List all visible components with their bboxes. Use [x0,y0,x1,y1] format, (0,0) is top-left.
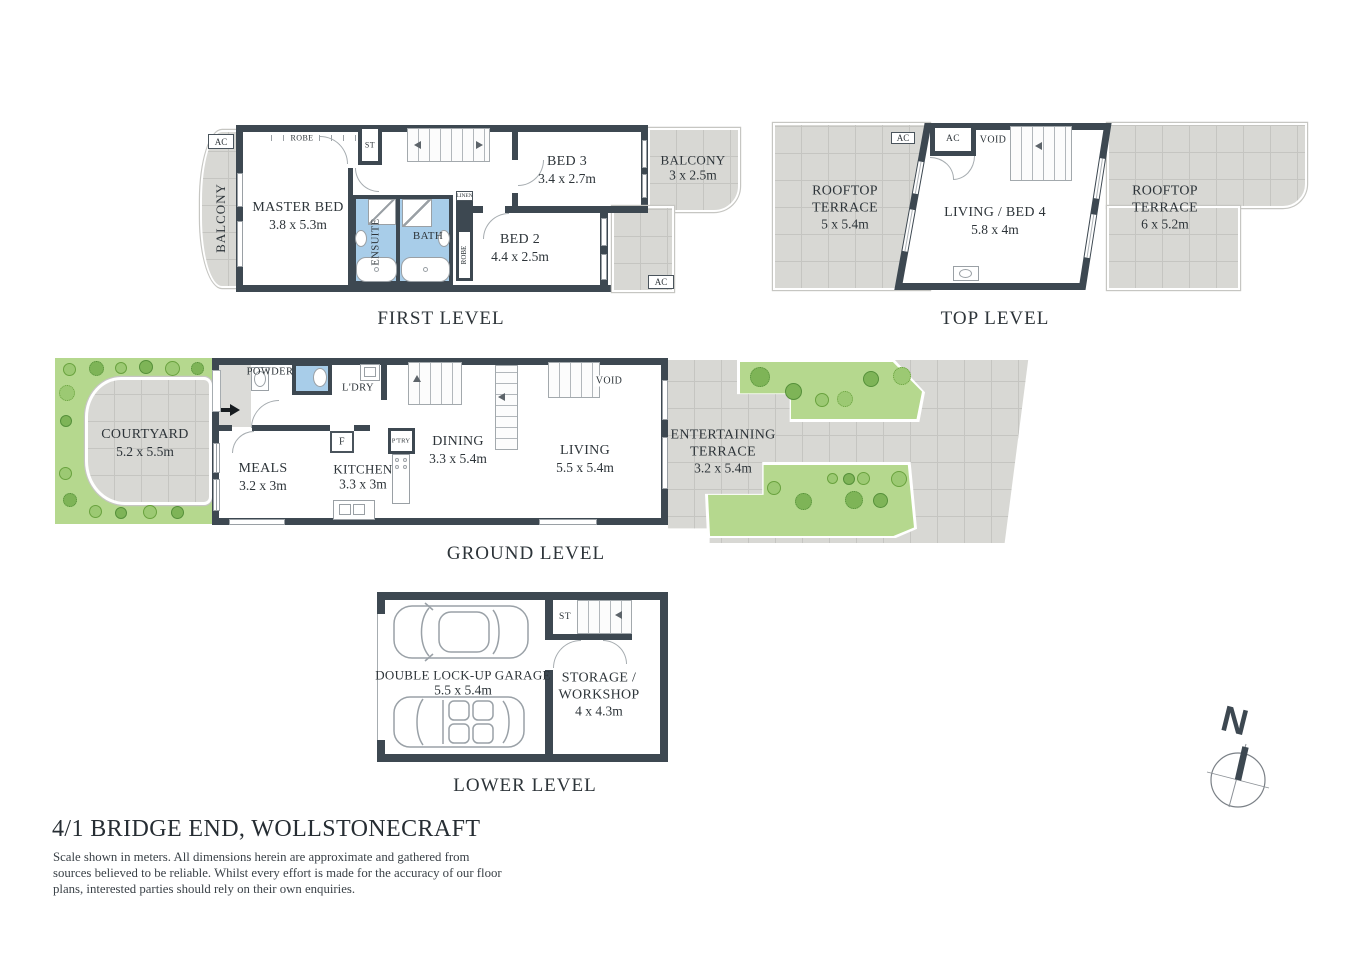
plant-icon [857,472,870,485]
lower-garage-label: DOUBLE LOCK-UP GARAGE 5.5 x 5.4m [375,667,551,698]
entry-arrow-icon [230,404,240,416]
car-top-view [391,693,527,751]
ground-terrace-label: ENTERTAINING TERRACE 3.2 x 5.4m [661,428,786,477]
compass: N [1192,696,1288,808]
window [229,519,285,525]
room-name: DOUBLE LOCK-UP GARAGE [375,667,551,682]
stove-burner [395,458,399,462]
ground-powder-label: POWDER [247,367,294,378]
stove-burner [395,465,399,469]
stair-arrow-icon [476,141,483,149]
top-level-plan: AC AC VOID ROOFTOP TERRACE 5 x 5.4m LIVI… [773,118,1318,333]
ac-label: AC [897,133,910,143]
room-name: BED 3 [538,154,596,171]
first-master-label: MASTER BED 3.8 x 5.3m [252,200,343,232]
lower-storage-label: STORAGE / WORKSHOP 4 x 4.3m [549,671,649,720]
plant-icon [115,362,127,374]
wall [354,425,370,431]
wall [252,425,330,431]
plant-icon [63,493,77,507]
toilet-seat [959,269,972,278]
lower-store-label: ST [559,612,571,622]
first-bed2-label: BED 2 4.4 x 2.5m [491,232,549,264]
first-balcony-right-label: BALCONY 3 x 2.5m [661,152,726,183]
room-dims: 5.8 x 4m [944,221,1046,237]
first-bed3-label: BED 3 3.4 x 2.7m [538,154,596,186]
top-living-label: LIVING / BED 4 5.8 x 4m [944,205,1046,237]
room-name: MEALS [239,461,288,478]
top-ac-unit-label: AC [946,134,960,144]
disclaimer-line: sources believed to be reliable. Whilst … [53,865,553,881]
ground-stairs-down [495,365,518,450]
plant-icon [115,507,127,519]
closet [456,201,473,229]
stair-arrow-icon [413,375,421,382]
ground-fridge-label: F [339,437,345,448]
plant-icon [89,361,104,376]
plant-icon [60,415,72,427]
wall [381,358,387,400]
plant-icon [171,506,184,519]
top-ac-wall-tag: AC [891,132,915,144]
laundry-sink-bowl [364,367,376,377]
room-name: BED 2 [491,232,549,249]
entry-arrow-icon [221,408,230,412]
ground-meals-label: MEALS 3.2 x 3m [239,461,288,493]
room-dims: 6 x 5.2m [1119,217,1211,233]
plant-icon [59,467,72,480]
room-dims: 4 x 4.3m [549,704,649,720]
first-bath-label: BATH [413,230,443,242]
ac-label: AC [215,137,228,147]
floor-plan-page: AC BALCONY AC ST ROBE ENS [0,0,1358,960]
shower [402,199,432,227]
entry-door-gap [212,370,221,412]
plant-icon [785,383,802,400]
first-robe-top-label: ROBE [289,134,316,143]
stair-arrow-icon [615,611,622,619]
room-dims: 5 x 5.4m [799,217,891,233]
plant-icon [873,493,888,508]
room-name: ROOFTOP TERRACE [1119,184,1211,217]
ground-dining-label: DINING 3.3 x 5.4m [429,434,487,466]
first-ac-top-tag: AC [208,134,234,149]
plant-icon [59,385,75,401]
plant-icon [165,361,180,376]
room-dims: 5.2 x 5.5m [101,443,188,459]
stair-arrow-icon [414,141,421,149]
top-level-caption: TOP LEVEL [941,308,1050,330]
disclaimer-line: plans, interested parties should rely on… [53,881,553,897]
room-dims: 3.2 x 3m [239,477,288,493]
room-name: STORAGE / WORKSHOP [549,671,649,704]
window [237,173,243,207]
wall [553,634,632,640]
window [213,479,220,511]
wall [512,193,518,206]
window [539,519,597,525]
wall [473,206,483,213]
toilet [313,368,327,387]
room-name: LIVING [556,443,614,460]
plant-icon [89,505,102,518]
ground-void-label: VOID [594,376,625,387]
wall [212,425,232,431]
toilet [355,230,367,247]
kitchen-sink [353,504,365,515]
plant-icon [843,473,855,485]
first-linen-tag: LINEN [456,191,473,201]
plant-icon [891,471,907,487]
top-terrace-right-label: ROOFTOP TERRACE 6 x 5.2m [1119,184,1211,233]
plant-icon [750,367,770,387]
compass-rose-icon: N [1192,696,1288,808]
wall [545,592,553,640]
ground-laundry-label: L'DRY [342,383,374,394]
room-name: BALCONY [661,152,726,167]
basin [374,267,379,272]
room-dims: 4.4 x 2.5m [491,248,549,264]
ground-level-caption: GROUND LEVEL [447,543,605,565]
room-name: COURTYARD [101,427,188,444]
stair-arrow-icon [1035,142,1042,150]
plant-icon [139,360,153,374]
window [237,221,243,267]
ground-stairs-up [408,362,462,405]
plant-icon [815,393,829,407]
wall [512,125,518,160]
room-dims: 3 x 2.5m [661,168,726,184]
disclaimer-line: Scale shown in meters. All dimensions he… [53,849,553,865]
plant-icon [845,491,863,509]
page-title: 4/1 BRIDGE END, WOLLSTONECRAFT [52,816,480,843]
plant-icon [795,493,812,510]
room-name: DINING [429,434,487,451]
plant-icon [63,363,76,376]
ac-label: AC [655,277,668,287]
ground-level-plan: COURTYARD 5.2 x 5.5m POWDER L'DRY VOID F [55,355,1045,555]
wall [505,206,648,213]
top-terrace-left-label: ROOFTOP TERRACE 5 x 5.4m [799,184,891,233]
plant-icon [837,391,853,407]
first-robe-side-label: ROBE [460,246,468,265]
ground-stairs-upper-flight [548,362,600,398]
window [662,380,668,420]
lower-level-caption: LOWER LEVEL [453,775,596,797]
first-ensuite-label: ENSUITE [371,218,382,265]
disclaimer: Scale shown in meters. All dimensions he… [53,849,553,897]
room-dims: 3.8 x 5.3m [252,216,343,232]
plant-icon [893,367,911,385]
lower-level-plan: ST DO [377,592,672,802]
room-name: ENTERTAINING TERRACE [661,428,786,461]
plant-icon [767,481,781,495]
first-level-caption: FIRST LEVEL [377,308,504,330]
stair-arrow-icon [498,393,505,401]
room-dims: 5.5 x 5.4m [375,683,551,699]
first-store-label: ST [365,141,375,150]
plant-icon [863,371,879,387]
ground-courtyard-label: COURTYARD 5.2 x 5.5m [101,427,188,459]
ground-living-label: LIVING 5.5 x 5.4m [556,443,614,475]
room-name: LIVING / BED 4 [944,205,1046,222]
kitchen-sink [339,504,351,515]
ground-kitchen-label: KITCHEN 3.3 x 3m [333,461,392,492]
first-balcony-left-label: BALCONY [213,183,229,253]
basin [423,267,428,272]
window [213,443,220,473]
stove-burner [403,458,407,462]
top-void-label: VOID [978,135,1009,146]
car-top-view [391,601,531,663]
ground-pantry-label: P'TRY [392,438,410,445]
plant-icon [191,362,204,375]
room-dims: 3.3 x 3m [333,477,392,493]
plant-icon [143,505,157,519]
linen-label: LINEN [456,193,473,199]
room-name: KITCHEN [333,461,392,476]
top-stairs [1010,126,1072,181]
plant-icon [827,473,838,484]
room-dims: 3.2 x 5.4m [661,461,786,477]
stove-burner [403,465,407,469]
window [601,254,607,280]
room-dims: 3.3 x 5.4m [429,450,487,466]
room-name: ROOFTOP TERRACE [799,184,891,217]
window [601,218,607,246]
room-dims: 3.4 x 2.7m [538,170,596,186]
lower-stairs [577,600,632,634]
first-level-plan: AC BALCONY AC ST ROBE ENS [200,118,748,333]
window [642,174,647,198]
first-ac-bottom-tag: AC [648,275,674,289]
window [642,140,647,168]
north-label: N [1217,697,1252,743]
room-dims: 5.5 x 5.4m [556,459,614,475]
room-name: MASTER BED [252,200,343,217]
